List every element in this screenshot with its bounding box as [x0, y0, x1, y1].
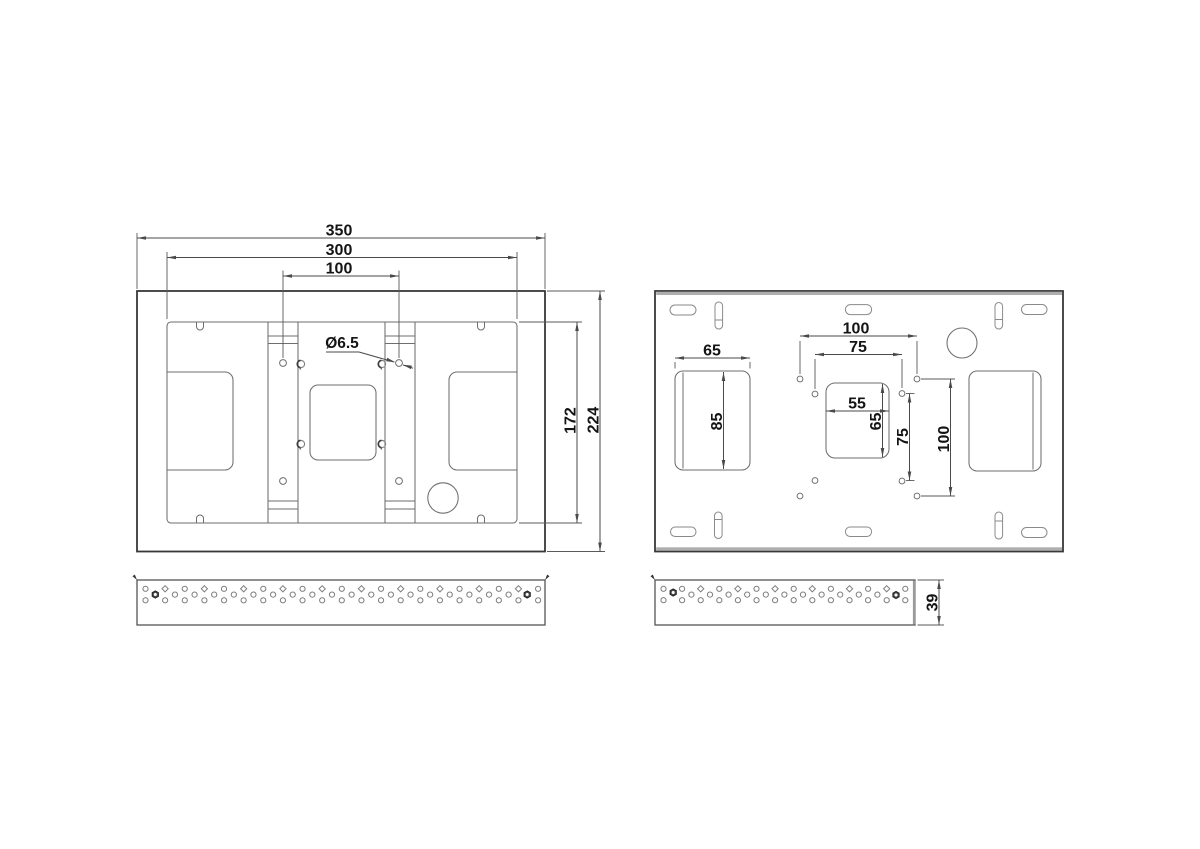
svg-text:350: 350: [326, 223, 353, 240]
svg-text:Ø6.5: Ø6.5: [325, 335, 359, 352]
svg-text:100: 100: [936, 426, 953, 453]
svg-text:224: 224: [586, 407, 603, 434]
svg-text:65: 65: [703, 343, 721, 360]
svg-text:75: 75: [895, 428, 912, 446]
svg-text:39: 39: [925, 594, 942, 612]
svg-text:75: 75: [849, 339, 867, 356]
svg-text:85: 85: [709, 413, 726, 431]
svg-text:65: 65: [868, 413, 885, 431]
svg-text:55: 55: [848, 396, 866, 413]
svg-text:172: 172: [563, 407, 580, 434]
svg-text:300: 300: [326, 242, 353, 259]
svg-text:100: 100: [843, 321, 870, 338]
svg-text:100: 100: [326, 261, 353, 278]
